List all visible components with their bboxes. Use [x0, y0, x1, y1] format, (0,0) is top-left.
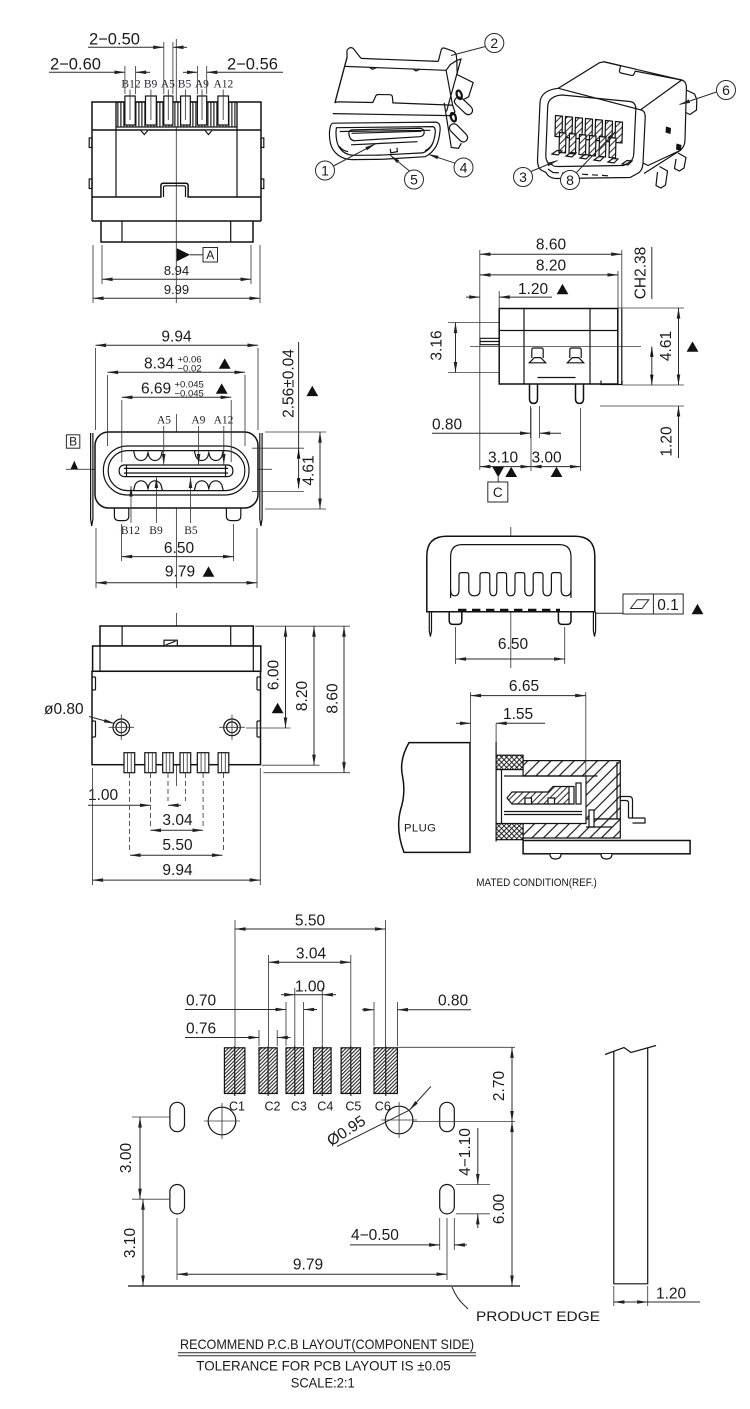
- svg-text:TOLERANCE FOR PCB LAYOUT IS ±0: TOLERANCE FOR PCB LAYOUT IS ±0.05: [196, 1358, 451, 1374]
- svg-text:B9: B9: [149, 525, 163, 537]
- svg-text:8.94: 8.94: [164, 263, 189, 278]
- svg-text:6.00: 6.00: [265, 660, 282, 691]
- svg-text:2: 2: [490, 35, 498, 51]
- svg-text:2.70: 2.70: [491, 1071, 508, 1102]
- svg-text:0.70: 0.70: [186, 993, 217, 1010]
- svg-text:2−0.56: 2−0.56: [227, 56, 278, 74]
- svg-text:MATED CONDITION(REF.): MATED CONDITION(REF.): [476, 877, 597, 889]
- svg-text:B12: B12: [121, 79, 140, 91]
- svg-text:1.55: 1.55: [503, 706, 533, 723]
- svg-text:3.00: 3.00: [118, 1143, 135, 1174]
- svg-text:3.04: 3.04: [162, 812, 193, 829]
- svg-text:6.69: 6.69: [141, 381, 171, 398]
- svg-text:A12: A12: [214, 415, 234, 427]
- svg-text:9.99: 9.99: [164, 282, 189, 297]
- svg-text:2−0.50: 2−0.50: [89, 31, 140, 49]
- svg-text:C5: C5: [345, 1100, 361, 1114]
- svg-text:3: 3: [519, 169, 527, 185]
- svg-text:C: C: [493, 485, 503, 500]
- svg-text:9.94: 9.94: [162, 862, 193, 879]
- svg-text:4.61: 4.61: [301, 455, 318, 485]
- svg-text:B12: B12: [121, 525, 140, 537]
- svg-text:0.76: 0.76: [186, 1021, 216, 1038]
- svg-text:6.50: 6.50: [164, 540, 195, 557]
- svg-text:1.20: 1.20: [656, 1286, 687, 1303]
- svg-text:0.1: 0.1: [657, 597, 679, 614]
- svg-text:8.20: 8.20: [536, 258, 567, 275]
- svg-text:5.50: 5.50: [295, 913, 326, 930]
- svg-text:4.61: 4.61: [658, 331, 675, 361]
- svg-text:3.16: 3.16: [429, 330, 446, 360]
- svg-text:RECOMMEND P.C.B LAYOUT(COMPONE: RECOMMEND P.C.B LAYOUT(COMPONENT SIDE): [180, 1336, 474, 1352]
- svg-text:A: A: [206, 248, 214, 262]
- svg-text:1: 1: [321, 163, 329, 179]
- svg-text:4−0.50: 4−0.50: [351, 1227, 399, 1244]
- svg-text:6.65: 6.65: [509, 678, 539, 695]
- svg-text:B9: B9: [144, 79, 158, 91]
- svg-text:2−0.60: 2−0.60: [50, 56, 101, 74]
- svg-text:PLUG: PLUG: [404, 823, 436, 835]
- svg-text:0.80: 0.80: [432, 417, 463, 434]
- svg-text:3.10: 3.10: [488, 450, 519, 467]
- svg-text:3.04: 3.04: [296, 946, 327, 963]
- svg-text:PRODUCT EDGE: PRODUCT EDGE: [476, 1308, 600, 1324]
- svg-text:1.20: 1.20: [518, 281, 549, 298]
- svg-text:5: 5: [410, 172, 418, 188]
- svg-text:B5: B5: [178, 79, 192, 91]
- svg-text:8: 8: [566, 172, 574, 188]
- svg-text:8.60: 8.60: [536, 237, 567, 254]
- svg-text:6.00: 6.00: [491, 1194, 508, 1225]
- svg-text:9.79: 9.79: [165, 564, 195, 581]
- svg-text:0.80: 0.80: [438, 993, 469, 1010]
- svg-text:2.56±0.04: 2.56±0.04: [281, 349, 298, 418]
- svg-text:A9: A9: [191, 415, 205, 427]
- svg-text:6.50: 6.50: [498, 636, 529, 653]
- svg-text:4: 4: [460, 160, 468, 176]
- svg-text:1.00: 1.00: [295, 979, 326, 996]
- svg-text:C3: C3: [291, 1100, 307, 1114]
- svg-text:1.20: 1.20: [659, 426, 676, 457]
- svg-text:8.60: 8.60: [325, 683, 342, 714]
- svg-text:8.20: 8.20: [294, 681, 311, 712]
- svg-text:9.94: 9.94: [161, 329, 192, 346]
- svg-text:8.34: 8.34: [144, 356, 175, 373]
- svg-text:−0.02: −0.02: [178, 364, 202, 375]
- svg-text:B: B: [69, 434, 77, 448]
- svg-text:6: 6: [722, 82, 730, 98]
- svg-text:−0.045: −0.045: [175, 389, 204, 400]
- svg-text:9.79: 9.79: [293, 1257, 323, 1274]
- svg-text:5.50: 5.50: [162, 837, 193, 854]
- svg-text:B5: B5: [184, 525, 198, 537]
- svg-text:SCALE:2:1: SCALE:2:1: [291, 1375, 355, 1391]
- svg-text:A5: A5: [157, 415, 171, 427]
- svg-text:4−1.10: 4−1.10: [457, 1128, 474, 1176]
- svg-text:C2: C2: [265, 1100, 281, 1114]
- svg-text:3.00: 3.00: [532, 450, 563, 467]
- svg-text:ø0.80: ø0.80: [44, 701, 84, 718]
- svg-text:A12: A12: [213, 79, 233, 91]
- svg-text:C4: C4: [317, 1100, 333, 1114]
- svg-text:3.10: 3.10: [122, 1228, 139, 1259]
- svg-text:CH2.38: CH2.38: [633, 247, 650, 300]
